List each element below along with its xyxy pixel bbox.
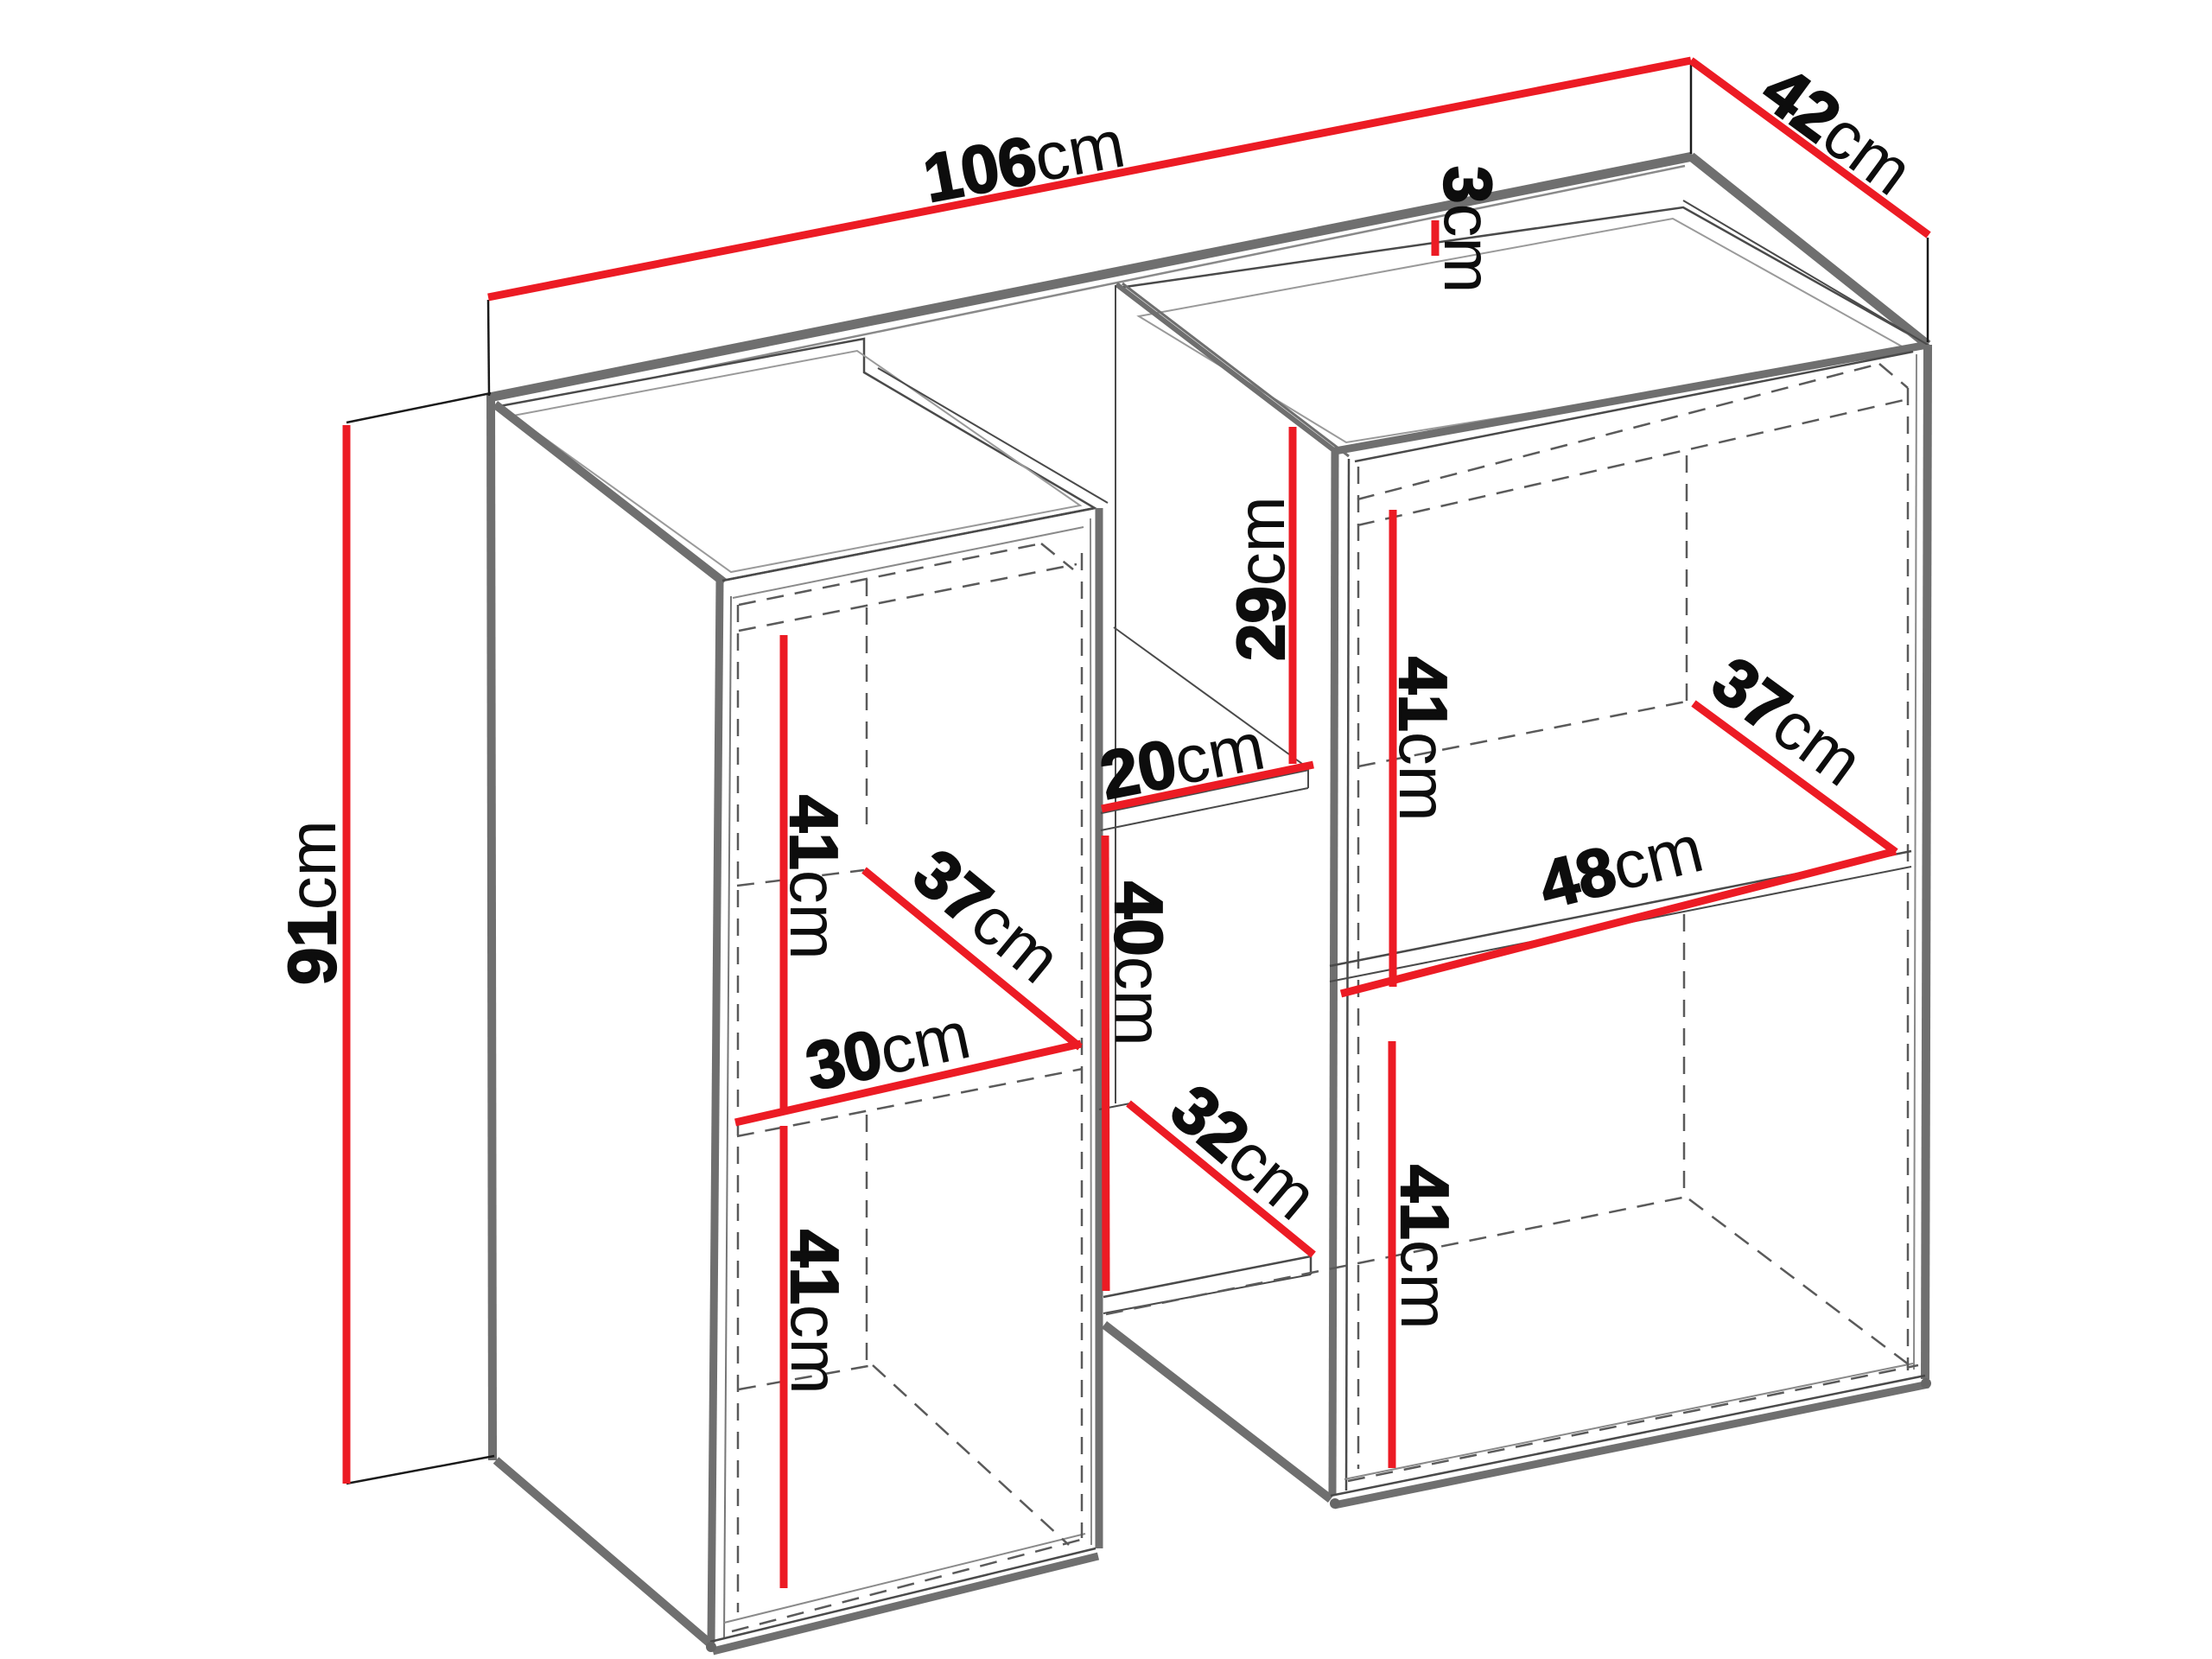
svg-text:29cm: 29cm: [1223, 496, 1299, 661]
svg-text:3cm: 3cm: [1430, 166, 1506, 293]
svg-text:91cm: 91cm: [274, 820, 350, 985]
svg-text:41cm: 41cm: [1385, 657, 1461, 822]
svg-text:41cm: 41cm: [1387, 1165, 1463, 1330]
svg-text:41cm: 41cm: [777, 1230, 853, 1395]
svg-text:40cm: 40cm: [1101, 881, 1177, 1046]
svg-text:41cm: 41cm: [776, 795, 852, 960]
